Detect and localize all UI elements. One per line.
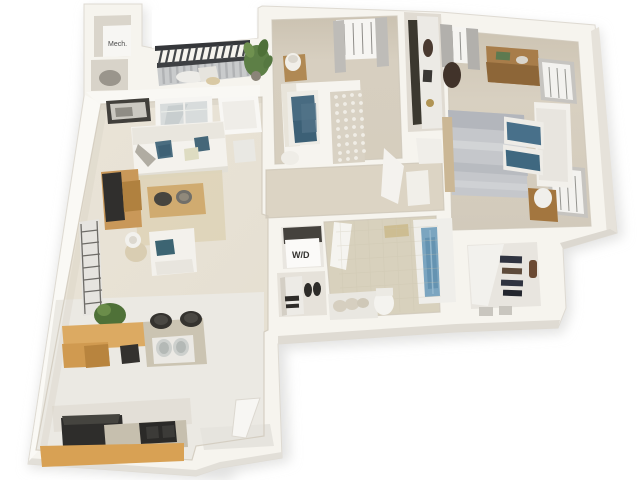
svg-text:Mech.: Mech. [108,41,127,48]
svg-text:W/D: W/D [292,250,310,260]
